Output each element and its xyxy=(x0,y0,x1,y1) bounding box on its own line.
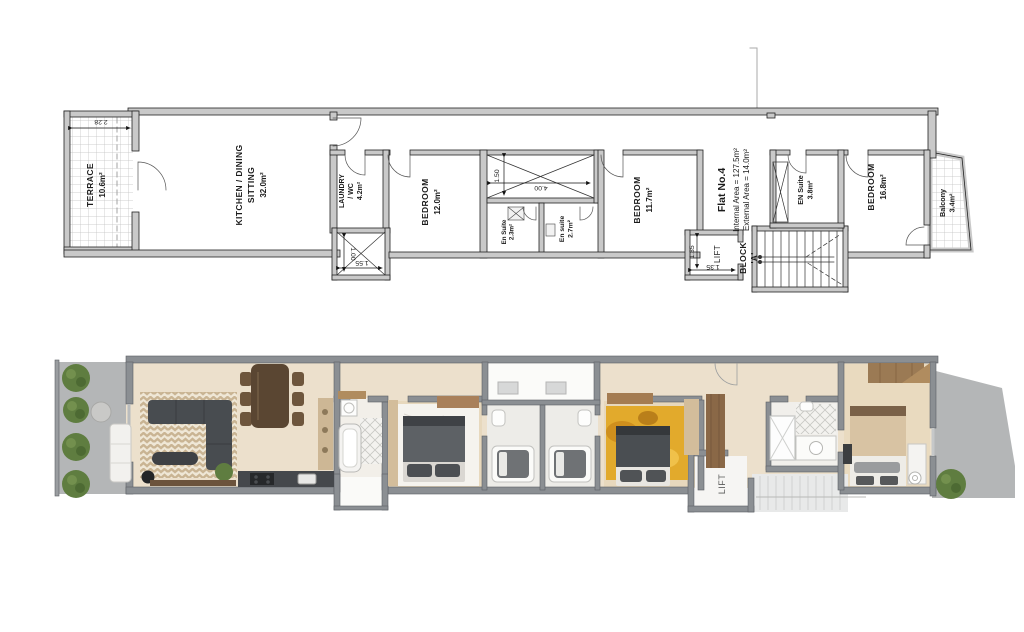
svg-text:12.0m²: 12.0m² xyxy=(433,189,442,215)
svg-text:11.7m²: 11.7m² xyxy=(645,187,654,212)
ensuite1-label: En Suite 2.3m² xyxy=(501,219,516,244)
render-lift-label: LIFT xyxy=(717,474,727,495)
terrace-width-dim: 2.28 xyxy=(94,118,107,125)
floorplan-page: 2.28 TERRACE 10.6m² KITCHEN / DINING SIT… xyxy=(0,0,1024,632)
svg-text:BEDROOM: BEDROOM xyxy=(632,176,642,223)
boundary-line xyxy=(750,48,757,108)
nightstand xyxy=(843,444,852,464)
lightwell-dim-h: 1.50 xyxy=(494,169,501,182)
svg-text:/ WC: / WC xyxy=(348,183,355,199)
shelf xyxy=(607,393,653,404)
plant xyxy=(215,463,233,481)
svg-text:BLOCK: BLOCK xyxy=(738,242,748,274)
desk xyxy=(437,396,479,408)
svg-text:32.0m²: 32.0m² xyxy=(259,172,268,198)
lift-label: LIFT xyxy=(713,245,722,263)
dining-table xyxy=(251,364,289,428)
living-room-furniture xyxy=(140,392,237,486)
svg-text:EN Suite: EN Suite xyxy=(796,175,805,205)
svg-text:4.2m²: 4.2m² xyxy=(357,181,364,200)
laundry-shelf xyxy=(338,391,366,399)
svg-text:10.6m²: 10.6m² xyxy=(98,172,107,198)
staircase xyxy=(757,231,841,287)
shaft-dim-h: 1.00 xyxy=(349,247,356,260)
render-shaft-floor xyxy=(340,477,382,507)
svg-text:2.7m²: 2.7m² xyxy=(568,219,575,237)
svg-text:SITTING: SITTING xyxy=(246,167,256,203)
bed2 xyxy=(616,426,670,486)
lightwell-dim-w: 4.00 xyxy=(534,184,547,191)
tv-console xyxy=(150,480,236,486)
toilet2 xyxy=(578,410,591,426)
ensuite2-label: En suite 2.7m² xyxy=(559,216,575,243)
hall-closet xyxy=(706,394,725,468)
bedroom2-label: BEDROOM 11.7m² xyxy=(632,176,654,223)
kitchen-wall-counter xyxy=(318,398,333,470)
ensuite3-label: EN Suite 3.8m² xyxy=(796,175,815,205)
svg-text:TERRACE: TERRACE xyxy=(85,163,95,207)
svg-text:3.8m²: 3.8m² xyxy=(806,180,815,199)
flat-internal-area: Internal Area = 127.5m² xyxy=(732,148,741,232)
bedroom3-label: BEDROOM 16.8m² xyxy=(866,163,888,210)
svg-text:3.4m²: 3.4m² xyxy=(948,193,957,212)
lift-dim-h: 1.35 xyxy=(689,245,696,258)
dining-furniture xyxy=(240,364,304,428)
lift-dim-w: 1.35 xyxy=(706,263,719,270)
bed3 xyxy=(850,406,906,486)
plan-2d: 2.28 TERRACE 10.6m² KITCHEN / DINING SIT… xyxy=(64,48,971,292)
floorplan-canvas: 2.28 TERRACE 10.6m² KITCHEN / DINING SIT… xyxy=(0,0,1024,632)
balcony-bush xyxy=(936,469,966,499)
svg-text:En Suite: En Suite xyxy=(501,219,508,244)
sink xyxy=(810,442,823,455)
svg-text:2.3m²: 2.3m² xyxy=(509,224,516,240)
svg-text:KITCHEN / DINING: KITCHEN / DINING xyxy=(234,144,244,225)
flat-number: Flat No.4 xyxy=(716,168,728,212)
bedroom1-label: BEDROOM 12.0m² xyxy=(420,178,442,225)
svg-text:16.8m²: 16.8m² xyxy=(879,174,888,200)
svg-text:BEDROOM: BEDROOM xyxy=(420,178,430,225)
coffee-table xyxy=(152,452,198,465)
toilet1 xyxy=(492,410,505,426)
render-3d: LIFT xyxy=(55,356,1015,512)
flat-external-area: External Area = 14.0m² xyxy=(742,149,751,231)
svg-text:Balcony: Balcony xyxy=(938,189,947,217)
svg-text:LAUNDRY: LAUNDRY xyxy=(339,174,346,208)
toilet3 xyxy=(800,402,813,411)
kitchen-sink xyxy=(298,474,316,484)
flat-info: Flat No.4 Internal Area = 127.5m² Extern… xyxy=(716,148,751,232)
svg-text:En suite: En suite xyxy=(559,216,566,243)
kitchen-label: KITCHEN / DINING SITTING 32.0m² xyxy=(234,144,268,225)
wardrobe2 xyxy=(684,399,699,455)
laundry-label: LAUNDRY / WC 4.2m² xyxy=(339,174,364,208)
svg-text:BEDROOM: BEDROOM xyxy=(866,163,876,210)
bed1 xyxy=(403,416,465,482)
shaft-dim-w: 1.55 xyxy=(355,259,368,266)
washer xyxy=(341,400,357,416)
hob xyxy=(250,473,274,485)
bedroom1-furniture xyxy=(388,396,479,486)
wardrobe xyxy=(388,400,398,486)
svg-text:'A': 'A' xyxy=(749,252,759,263)
